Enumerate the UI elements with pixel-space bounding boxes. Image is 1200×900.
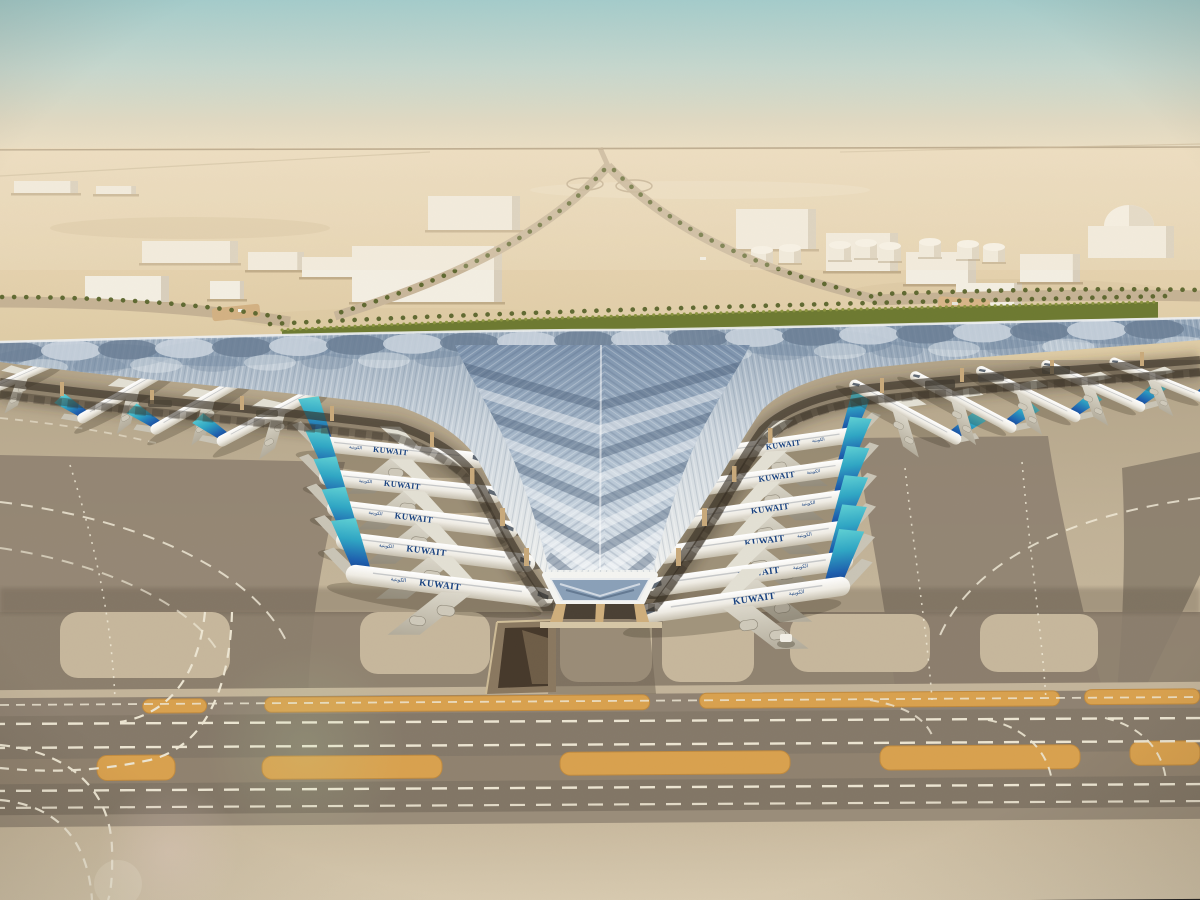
rendering-canvas: KUWAITالكويتيةKUWAITالكويتيةKUWAITالكويت… xyxy=(0,0,1200,900)
airport-aerial-rendering: KUWAITالكويتيةKUWAITالكويتيةKUWAITالكويت… xyxy=(0,0,1200,900)
vignette xyxy=(0,0,1200,900)
